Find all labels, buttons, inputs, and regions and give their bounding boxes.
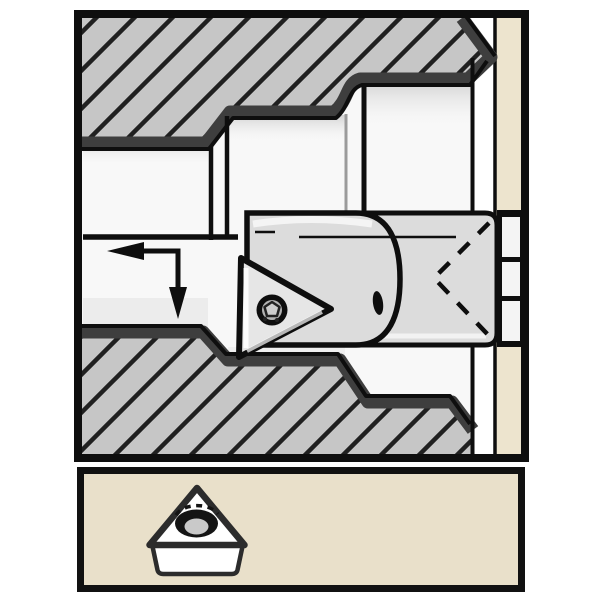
detail-panel-frame bbox=[81, 471, 522, 589]
insert-clamp-screw bbox=[257, 295, 288, 326]
clamp-tooth-2 bbox=[502, 262, 520, 296]
clamp-tooth-1 bbox=[502, 217, 520, 257]
insert-side-face bbox=[152, 544, 243, 574]
clamp-serrations bbox=[497, 210, 522, 347]
illustration-stage bbox=[0, 0, 600, 600]
tooling-diagram bbox=[0, 0, 600, 600]
screw-torx-socket bbox=[265, 302, 280, 316]
large-bore-shading bbox=[364, 81, 472, 129]
screw-detail-dot-1 bbox=[263, 317, 267, 321]
clamp-tooth-3 bbox=[502, 301, 520, 341]
insert-detail-panel bbox=[81, 471, 522, 589]
screw-detail-dot-2 bbox=[275, 318, 279, 322]
main-panel bbox=[78, 14, 525, 458]
hole-bore bbox=[185, 519, 209, 535]
